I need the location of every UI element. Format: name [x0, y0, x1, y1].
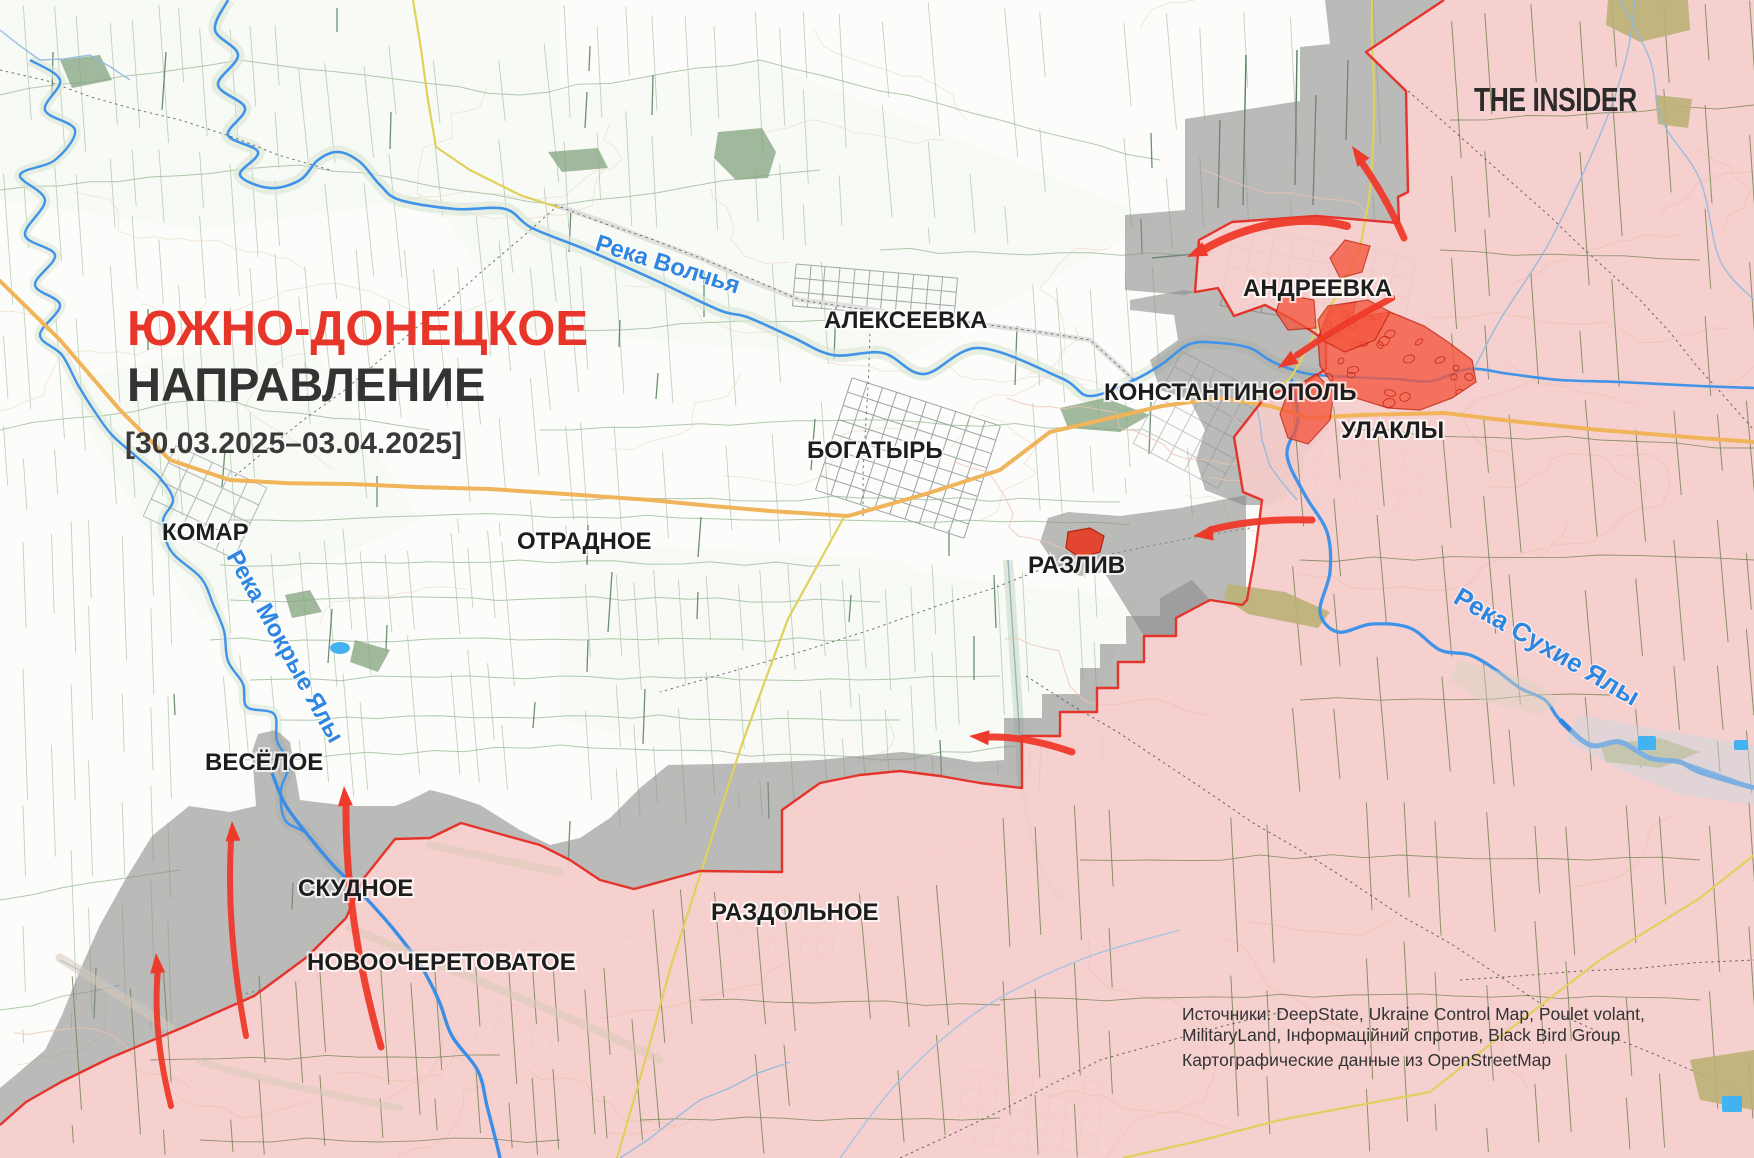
svg-text:НАПРАВЛЕНИЕ: НАПРАВЛЕНИЕ [127, 358, 485, 411]
svg-text:РАЗДОЛЬНОЕ: РАЗДОЛЬНОЕ [711, 899, 879, 926]
svg-text:БОГАТЫРЬ: БОГАТЫРЬ [807, 437, 943, 464]
svg-text:ЮЖНО-ДОНЕЦКОЕ: ЮЖНО-ДОНЕЦКОЕ [127, 302, 588, 356]
svg-text:УЛАКЛЫ: УЛАКЛЫ [1341, 417, 1444, 444]
svg-text:MilitaryLand, Інформаційний сп: MilitaryLand, Інформаційний спротив, Bla… [1182, 1025, 1620, 1045]
svg-text:НОВООЧЕРЕТОВАТОЕ: НОВООЧЕРЕТОВАТОЕ [307, 949, 576, 976]
svg-text:ВЕСЁЛОЕ: ВЕСЁЛОЕ [205, 749, 323, 776]
svg-text:THE INSIDER: THE INSIDER [1474, 82, 1637, 118]
svg-text:СКУДНОЕ: СКУДНОЕ [298, 875, 413, 902]
svg-text:[30.03.2025–03.04.2025]: [30.03.2025–03.04.2025] [125, 427, 462, 460]
svg-text:ОТРАДНОЕ: ОТРАДНОЕ [517, 528, 652, 555]
svg-text:Картографические данные из Ope: Картографические данные из OpenStreetMap [1182, 1050, 1551, 1070]
svg-text:Источники: DeepState, Ukraine: Источники: DeepState, Ukraine Control Ma… [1182, 1004, 1645, 1024]
svg-text:РАЗЛИВ: РАЗЛИВ [1028, 552, 1125, 579]
svg-text:АНДРЕЕВКА: АНДРЕЕВКА [1243, 275, 1392, 302]
svg-text:АЛЕКСЕЕВКА: АЛЕКСЕЕВКА [824, 307, 987, 334]
svg-text:КОНСТАНТИНОПОЛЬ: КОНСТАНТИНОПОЛЬ [1104, 379, 1357, 406]
svg-text:КОМАР: КОМАР [162, 519, 249, 546]
